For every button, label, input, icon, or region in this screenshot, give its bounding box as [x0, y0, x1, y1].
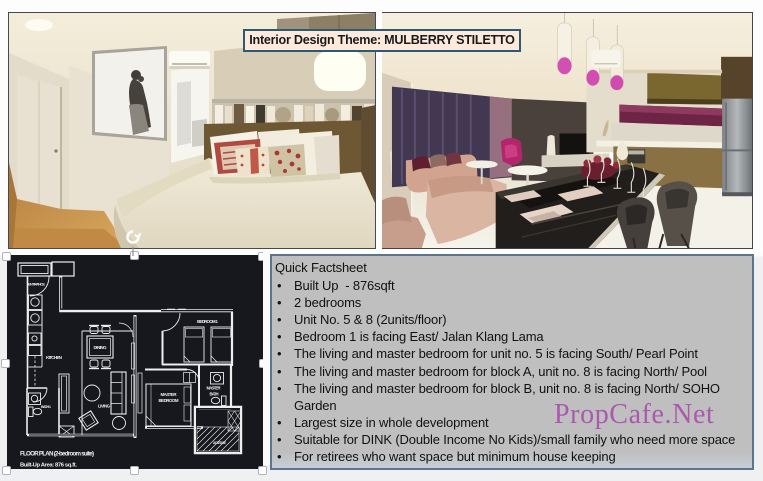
svg-text:LIVING: LIVING — [98, 404, 111, 409]
svg-text:BEDROOM 1: BEDROOM 1 — [197, 319, 219, 324]
svg-text:FLOOR PLAN (2-bedroom suite): FLOOR PLAN (2-bedroom suite) — [20, 451, 94, 458]
svg-text:MASTER: MASTER — [161, 392, 178, 397]
svg-text:AC LEDGE: AC LEDGE — [213, 441, 227, 445]
svg-text:ENTRANCE: ENTRANCE — [28, 282, 45, 287]
svg-text:Built-Up Area: 876 sq.ft.: Built-Up Area: 876 sq.ft. — [20, 463, 77, 469]
svg-text:KITCHEN: KITCHEN — [46, 355, 63, 360]
svg-text:MASTER: MASTER — [207, 386, 221, 391]
svg-text:BEDROOM: BEDROOM — [159, 398, 179, 403]
svg-text:BATH 1: BATH 1 — [41, 405, 51, 409]
svg-text:DINING: DINING — [94, 345, 108, 350]
svg-text:BATH: BATH — [210, 392, 219, 397]
